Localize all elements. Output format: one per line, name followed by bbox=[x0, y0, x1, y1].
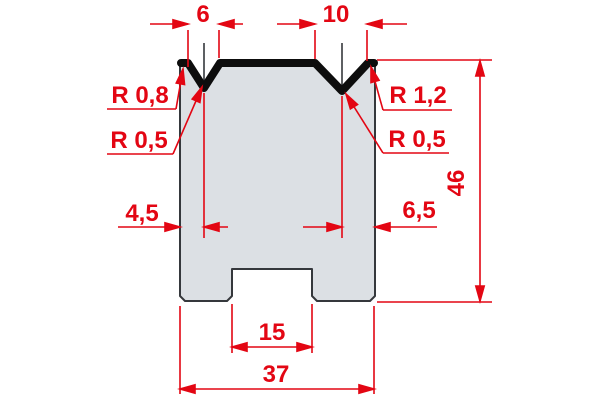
arrowhead bbox=[165, 223, 180, 231]
arrowhead bbox=[297, 343, 312, 351]
label-total-width: 37 bbox=[263, 361, 290, 388]
arrowhead bbox=[359, 385, 374, 393]
label-right-offset: 6,5 bbox=[402, 197, 435, 224]
die-body bbox=[180, 62, 375, 301]
arrowhead bbox=[476, 286, 484, 301]
label-total-height: 46 bbox=[443, 170, 470, 197]
arrowhead bbox=[375, 223, 390, 231]
label-radius-left-outer: R 0,8 bbox=[111, 82, 168, 109]
arrowhead bbox=[300, 20, 315, 28]
die-body-outline bbox=[180, 62, 375, 301]
technical-drawing-page: 6 10 R 0,8 R 0,5 R 1,2 R 0,5 4,5 6,5 46 … bbox=[0, 0, 600, 400]
arrowhead bbox=[476, 61, 484, 76]
label-radius-right-outer: R 1,2 bbox=[389, 82, 446, 109]
label-radius-right-groove: R 0,5 bbox=[388, 126, 445, 153]
die-cross-section-drawing: 6 10 R 0,8 R 0,5 R 1,2 R 0,5 4,5 6,5 46 … bbox=[0, 0, 600, 400]
label-left-v-width: 6 bbox=[196, 1, 209, 28]
arrowhead bbox=[219, 20, 234, 28]
arrowhead bbox=[367, 20, 382, 28]
arrowhead bbox=[232, 343, 247, 351]
label-slot-width: 15 bbox=[259, 319, 286, 346]
label-left-offset: 4,5 bbox=[125, 200, 158, 227]
arrowhead bbox=[180, 385, 195, 393]
label-right-v-width: 10 bbox=[323, 1, 350, 28]
label-radius-left-groove: R 0,5 bbox=[110, 127, 167, 154]
arrowhead bbox=[173, 20, 188, 28]
